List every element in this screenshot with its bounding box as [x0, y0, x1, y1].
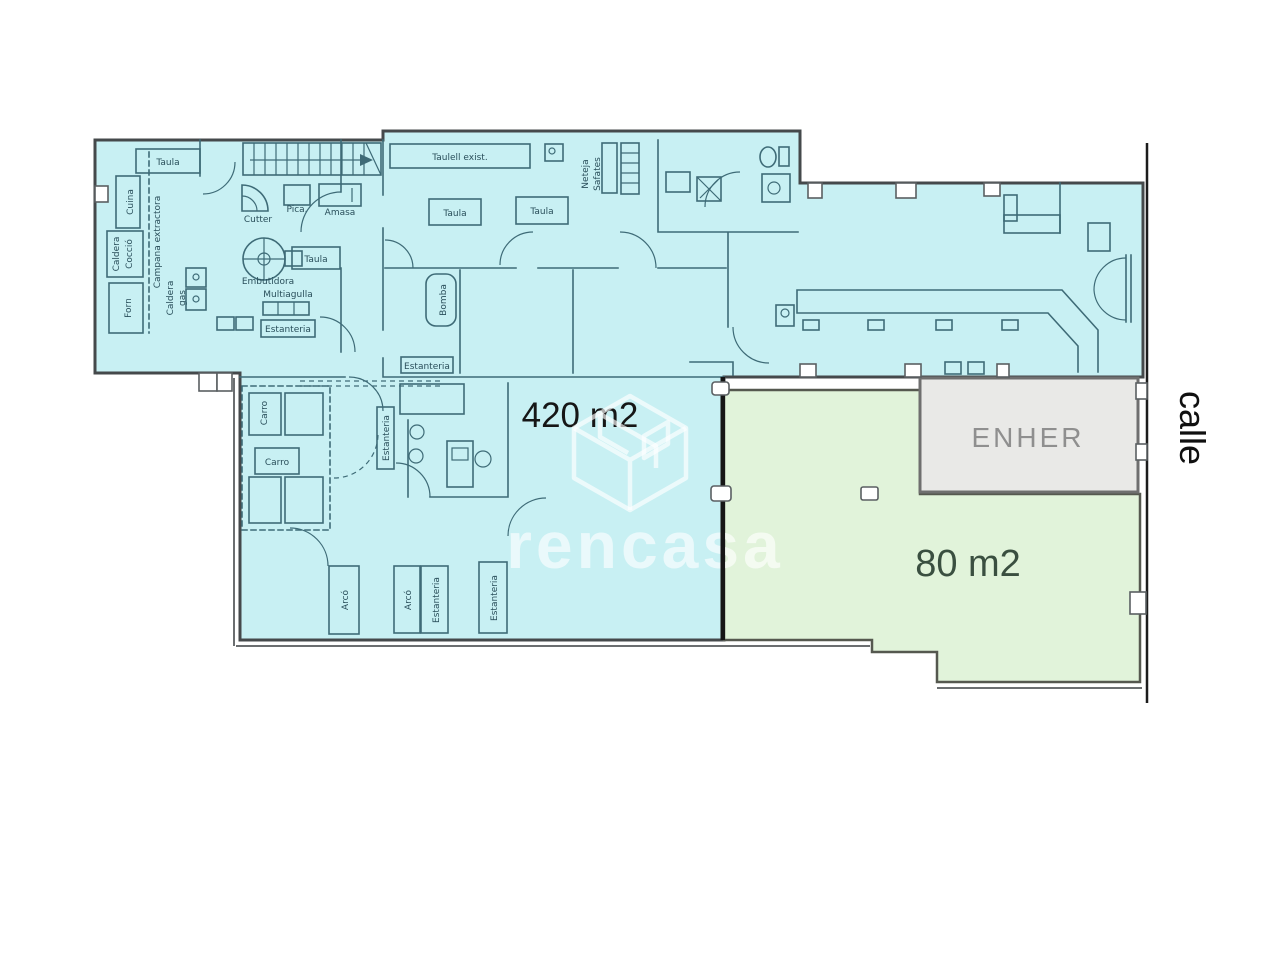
- carro-label: Carro: [265, 458, 290, 468]
- pillar: [984, 183, 1000, 196]
- arco-label: Arcó: [340, 589, 351, 610]
- floorplan-drawing: calle Taula Cuina Caldera Cocció Forn Ca…: [0, 0, 1280, 960]
- estanteria-mid-label: Estanteria: [404, 362, 450, 372]
- watermark-brand-text: rencasa: [506, 508, 784, 582]
- carro-label-rot: Carro: [260, 400, 270, 425]
- column-marker: [861, 487, 878, 500]
- estanteria-kitchen-label: Estanteria: [265, 325, 311, 335]
- cuina-label: Cuina: [126, 189, 136, 215]
- cutter-label: Cutter: [244, 215, 273, 225]
- estanteria-office-label: Estanteria: [382, 415, 392, 461]
- street-boundary: calle: [1147, 143, 1213, 703]
- forn-label: Forn: [124, 298, 134, 318]
- estanteria-label: Estanteria: [432, 577, 442, 623]
- door-jamb: [1136, 444, 1147, 460]
- coccio-label: Cocció: [124, 239, 135, 269]
- embutidora-label: Embutidora: [242, 277, 294, 287]
- pillar: [808, 183, 822, 198]
- bomba-label: Bomba: [439, 284, 449, 316]
- floorplan-page: calle Taula Cuina Caldera Cocció Forn Ca…: [0, 0, 1280, 960]
- taula2-label: Taula: [303, 255, 327, 265]
- arco-label: Arcó: [403, 589, 414, 610]
- chimney-cell: [217, 373, 232, 391]
- wall-notch: [1130, 592, 1146, 614]
- taulell-label: Taulell exist.: [431, 153, 487, 163]
- pica-label: Pica.: [286, 205, 307, 215]
- pillar: [896, 183, 916, 198]
- campana-extractora-label: Campana extractora: [153, 196, 163, 289]
- pillar: [800, 364, 816, 377]
- divider-line: [721, 377, 726, 640]
- taula-mid-label: Taula: [442, 209, 466, 219]
- door-jamb: [1136, 383, 1147, 399]
- estanteria-label: Estanteria: [490, 575, 500, 621]
- pillar: [905, 364, 921, 377]
- enher-label: ENHER: [971, 422, 1084, 453]
- multiagulla-label: Multiagulla: [263, 290, 312, 300]
- amasa-label: Amasa: [325, 208, 356, 218]
- caldera-gas-label-1: Caldera: [166, 281, 176, 316]
- pillar: [997, 364, 1009, 377]
- street-label: calle: [1172, 391, 1213, 465]
- area-secondary-label: 80 m2: [915, 543, 1021, 585]
- caldera-label: Caldera: [112, 237, 122, 272]
- neteja-label: Neteja: [581, 159, 591, 188]
- divider-marker: [711, 486, 731, 501]
- wall-recess: [95, 186, 108, 202]
- divider-marker: [712, 382, 729, 395]
- taula-label: Taula: [155, 158, 179, 168]
- chimney-cell: [199, 373, 217, 391]
- taula-mid-label: Taula: [529, 207, 553, 217]
